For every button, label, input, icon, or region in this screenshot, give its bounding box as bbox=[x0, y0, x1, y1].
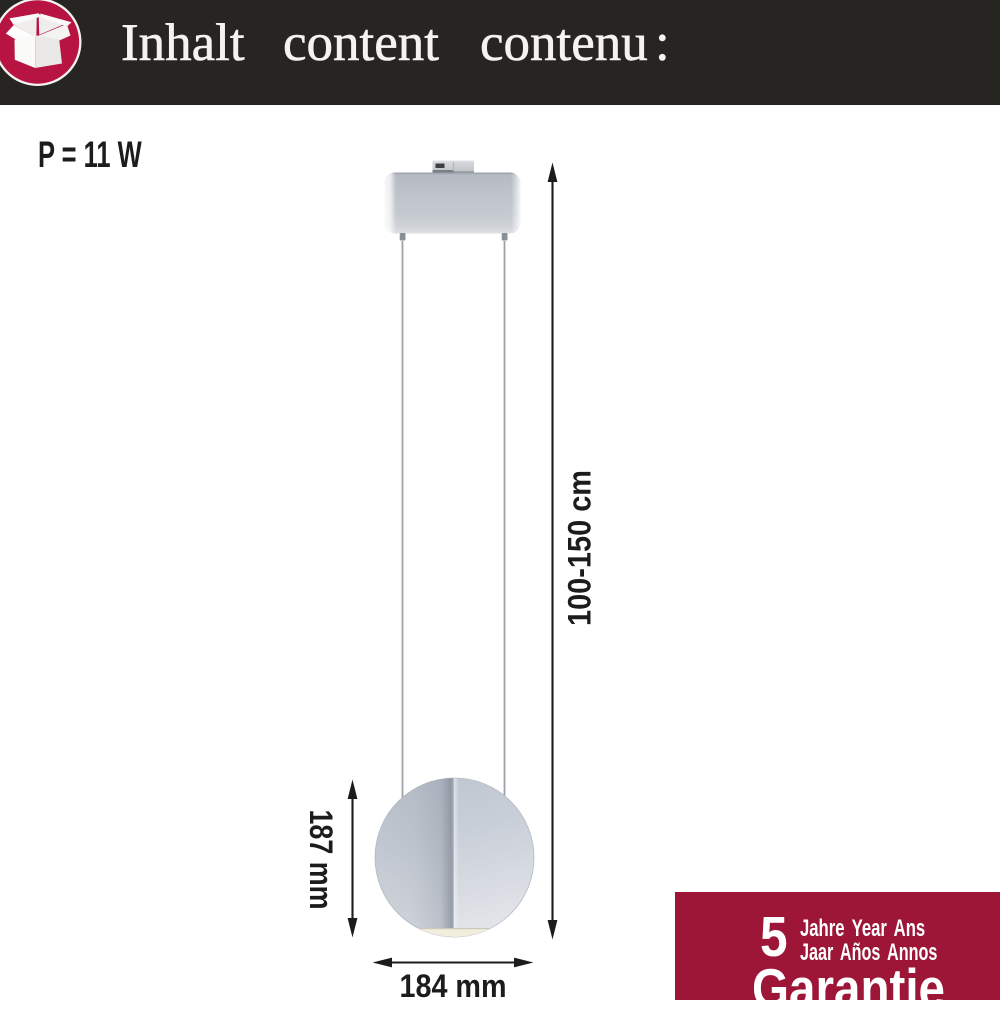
svg-text:184 mm: 184 mm bbox=[400, 968, 507, 1000]
svg-text:100-150 cm: 100-150 cm bbox=[562, 470, 598, 626]
svg-text:187 mm: 187 mm bbox=[303, 810, 339, 910]
